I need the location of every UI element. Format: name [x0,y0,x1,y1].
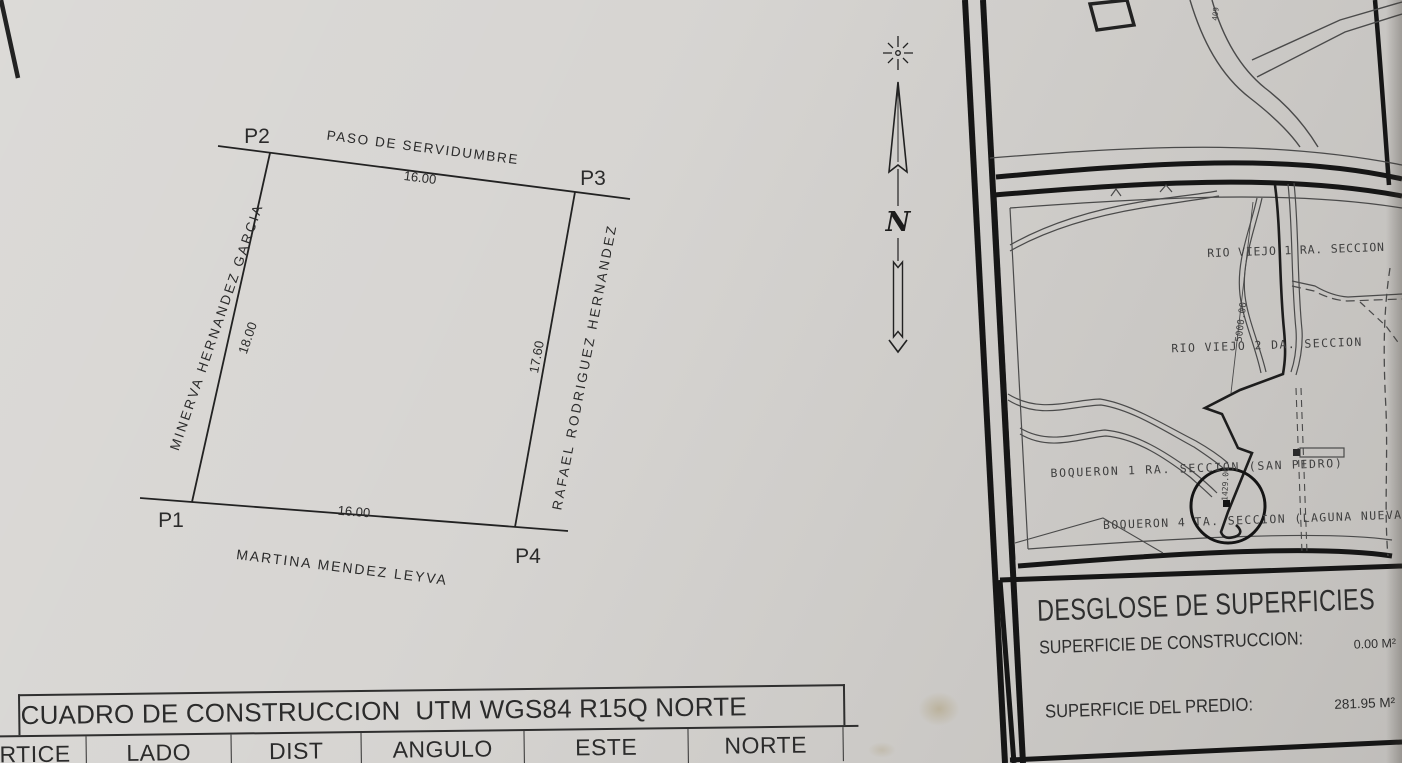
upper-map-parcel [1090,0,1134,30]
right-sheet: 409 5000.00 [940,0,1402,763]
side-right-name: RAFAEL RODRIGUEZ HERNANDEZ [549,222,619,511]
north-arrow: N [883,36,913,352]
surface-predio-label: SUPERFICIE DEL PREDIO: [1045,693,1254,721]
col-header-lado: LADO [86,735,231,763]
col-header-este: ESTE [523,729,687,763]
north-letter: N [885,207,912,238]
vertex-p1: P1 [158,509,184,532]
surface-construction-value: 0.00 M² [1353,636,1396,651]
map-main-road [1205,185,1285,538]
map-label-rio-viejo-1: RIO VIEJO 1 RA. SECCION [1207,240,1385,260]
vertex-p4: P4 [515,545,541,568]
col-header-norte: NORTE [687,727,843,763]
sheet-outer-frame [965,0,1023,763]
dist-bottom: 16.00 [337,503,371,521]
upper-map-road-label: 409 [1210,7,1220,21]
col-header-angulo: ANGULO [360,731,523,763]
surface-construction-label: SUPERFICIE DE CONSTRUCCION: [1039,627,1304,657]
side-top-name: PASO DE SERVIDUMBRE [326,128,520,168]
sheet-corner-edge [1,0,18,78]
surface-predio-value: 281.95 M² [1334,695,1396,712]
construction-table: CUADRO DE CONSTRUCCION UTM WGS84 R15Q NO… [0,684,859,763]
surfaces-panel: DESGLOSE DE SUPERFICIES SUPERFICIE DE CO… [1000,566,1402,763]
site-plan-diagram: P2 P3 P1 P4 PASO DE SERVIDUMBRE MINERVA … [0,0,940,763]
side-bottom-name: MARTINA MENDEZ LEYVA [235,546,448,588]
dist-left: 18.00 [235,320,260,356]
north-arrow-tail [894,262,903,337]
col-header-dist: DIST [231,733,361,763]
vertex-p3: P3 [580,167,606,190]
scanned-survey-sheet: P2 P3 P1 P4 PASO DE SERVIDUMBRE MINERVA … [0,0,1402,763]
map-label-boqueron-4: BOQUERON 4 TA. SECCION (LAGUNA NUEVA [1103,508,1402,532]
map-label-rio-viejo-2: RIO VIEJO 2 DA. SECCION [1171,335,1363,356]
upper-map-panel: 409 [990,0,1402,185]
upper-map-roads [1190,0,1402,147]
vertex-p2: P2 [244,125,270,148]
col-header-vertice: VERTICE [0,736,86,763]
map-dim-5000: 5000.00 [1234,301,1250,342]
dist-top: 16.00 [403,168,437,187]
north-star-icon [883,36,913,70]
surfaces-title: DESGLOSE DE SUPERFICIES [1037,583,1376,628]
location-map-panel: 5000.00 1429.00 RIO VIEJO 1 R [994,182,1402,566]
